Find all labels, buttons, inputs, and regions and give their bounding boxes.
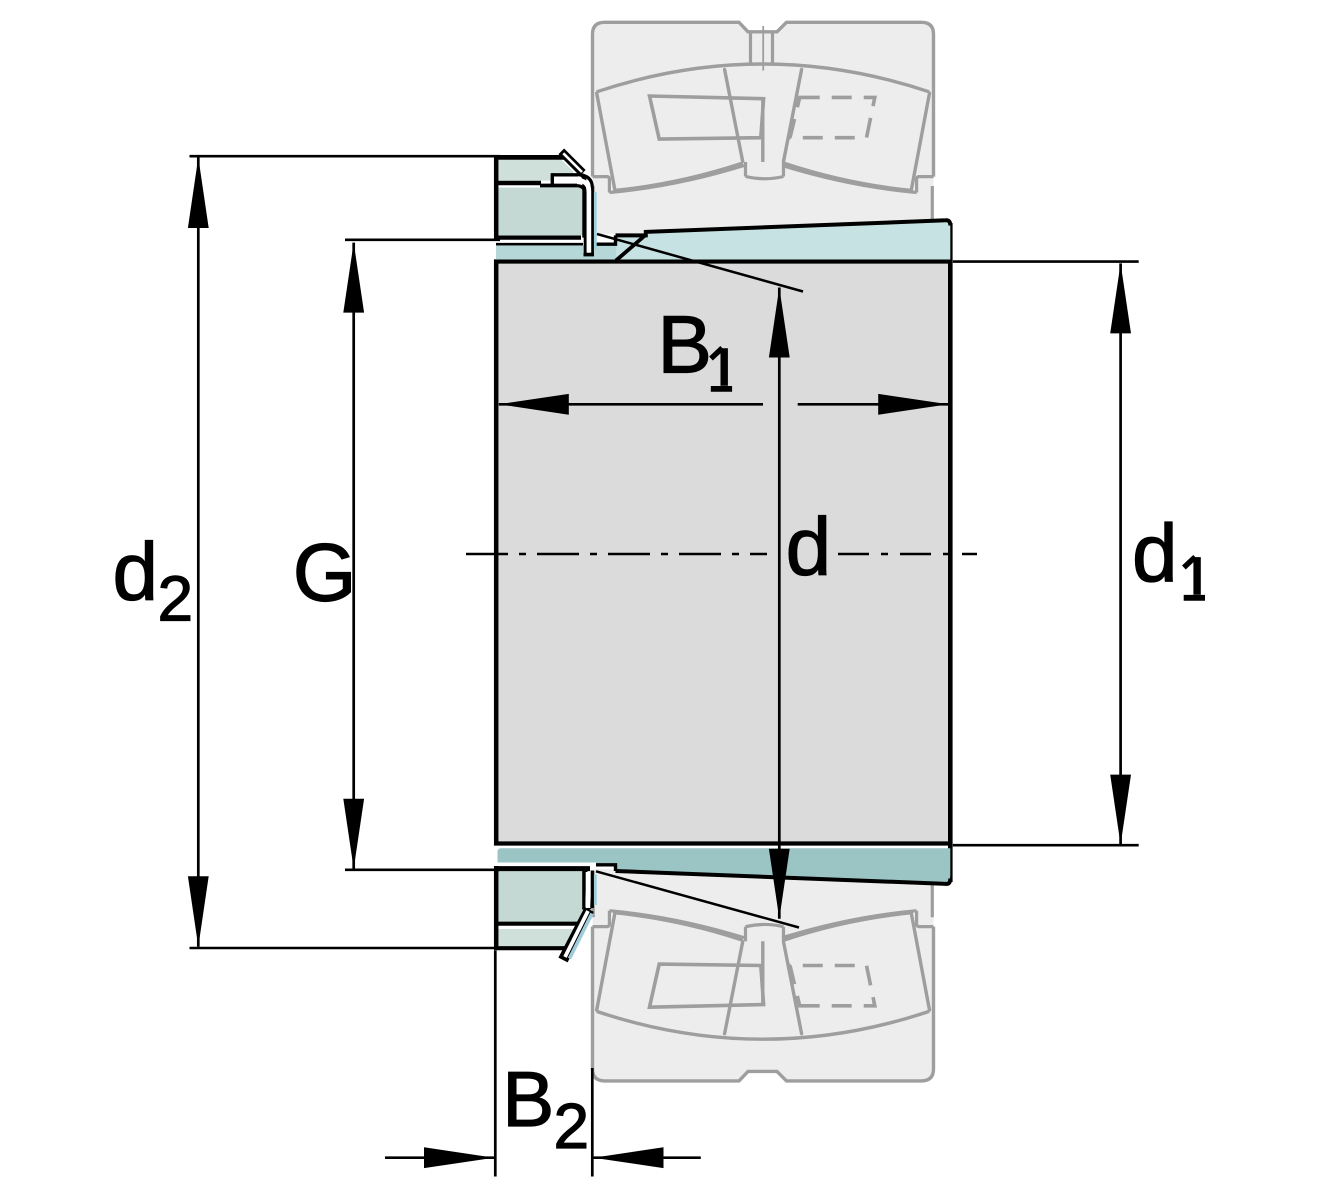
svg-text:2: 2	[554, 1090, 590, 1162]
svg-text:2: 2	[158, 562, 194, 634]
svg-text:d: d	[1132, 508, 1178, 599]
svg-text:B: B	[502, 1055, 554, 1143]
svg-text:G: G	[293, 528, 357, 619]
svg-text:d: d	[113, 527, 159, 618]
svg-text:d: d	[786, 502, 832, 593]
svg-text:B: B	[657, 300, 712, 391]
